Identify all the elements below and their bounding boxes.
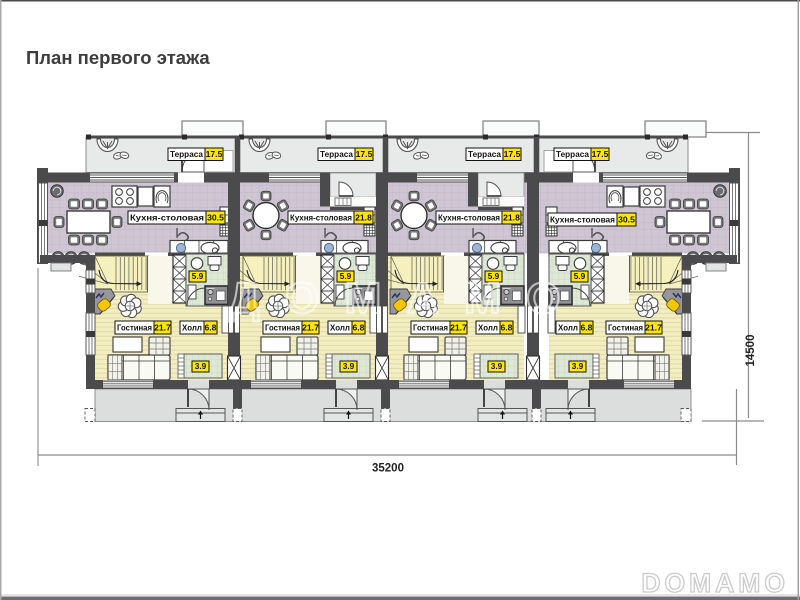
svg-text:Кухня-столовая: Кухня-столовая [130, 213, 204, 223]
svg-text:Холл: Холл [330, 323, 350, 333]
svg-text:21.7: 21.7 [154, 323, 171, 333]
svg-text:Гостиная: Гостиная [413, 323, 448, 333]
svg-text:Терраса: Терраса [320, 149, 353, 159]
svg-text:Кухня-столовая: Кухня-столовая [550, 215, 615, 225]
svg-text:30.5: 30.5 [618, 215, 635, 225]
svg-text:5.9: 5.9 [192, 271, 204, 281]
svg-text:6.8: 6.8 [581, 323, 593, 333]
svg-text:DOMAMO: DOMAMO [641, 568, 789, 598]
svg-text:Кухня-столовая: Кухня-столовая [290, 213, 352, 223]
svg-text:3.9: 3.9 [195, 361, 207, 371]
svg-text:21.7: 21.7 [645, 323, 662, 333]
svg-text:Терраса: Терраса [170, 149, 203, 159]
svg-text:План первого этажа: План первого этажа [26, 47, 210, 68]
svg-text:Холл: Холл [182, 323, 202, 333]
svg-text:3.9: 3.9 [572, 361, 584, 371]
svg-text:Терраса: Терраса [468, 149, 501, 159]
svg-text:Гостиная: Гостиная [265, 323, 300, 333]
svg-text:Гостиная: Гостиная [608, 323, 643, 333]
svg-text:21.8: 21.8 [355, 213, 372, 223]
svg-text:Терраса: Терраса [556, 149, 589, 159]
svg-text:6.8: 6.8 [501, 323, 513, 333]
svg-text:17.5: 17.5 [356, 149, 373, 159]
svg-text:6.8: 6.8 [353, 323, 365, 333]
svg-text:17.5: 17.5 [592, 149, 609, 159]
svg-text:35200: 35200 [372, 463, 404, 475]
svg-text:21.7: 21.7 [450, 323, 467, 333]
svg-text:6.8: 6.8 [205, 323, 217, 333]
svg-text:Гостиная: Гостиная [117, 323, 152, 333]
svg-text:17.5: 17.5 [206, 149, 223, 159]
svg-text:21.7: 21.7 [302, 323, 319, 333]
svg-text:3.9: 3.9 [343, 361, 355, 371]
svg-text:Холл: Холл [478, 323, 498, 333]
svg-text:3.9: 3.9 [491, 361, 503, 371]
svg-text:Кухня-столовая: Кухня-столовая [438, 213, 500, 223]
svg-text:14500: 14500 [745, 335, 757, 367]
svg-text:17.5: 17.5 [504, 149, 521, 159]
svg-text:30.5: 30.5 [207, 213, 224, 223]
svg-text:Холл: Холл [558, 323, 578, 333]
svg-text:ДОМАМО: ДОМАМО [228, 274, 586, 323]
svg-text:21.8: 21.8 [503, 213, 520, 223]
